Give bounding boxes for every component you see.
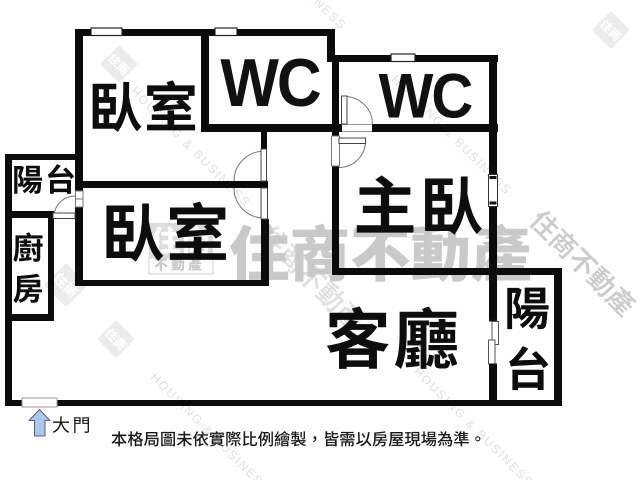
svg-text:WC: WC (220, 45, 320, 121)
svg-text:WC: WC (379, 60, 472, 131)
